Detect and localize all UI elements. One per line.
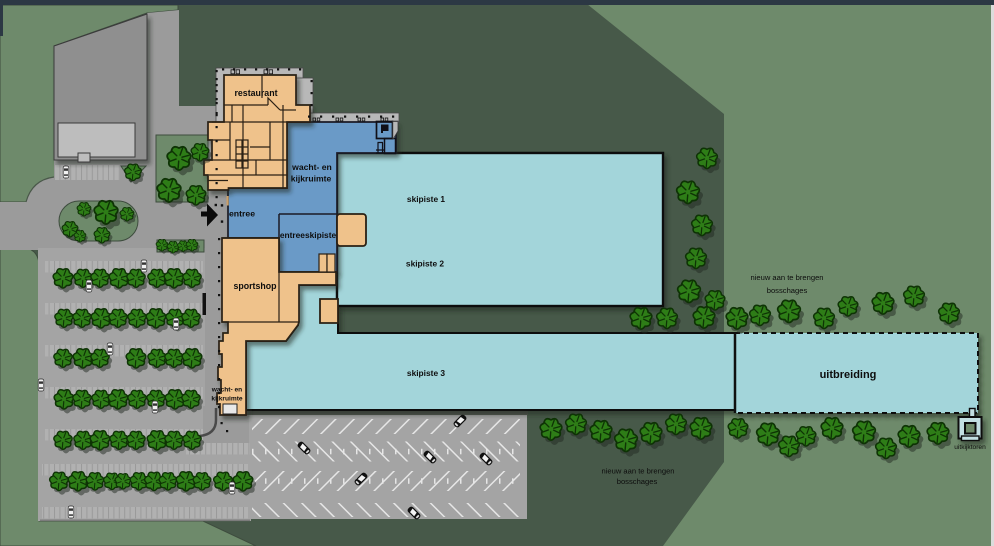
svg-text:uitbreiding: uitbreiding [820, 369, 877, 381]
svg-text:nieuw aan te brengen: nieuw aan te brengen [601, 467, 674, 476]
svg-text:sportshop: sportshop [233, 281, 277, 291]
svg-text:bosschages: bosschages [767, 286, 808, 295]
svg-text:kijkruimte: kijkruimte [211, 396, 242, 403]
svg-text:bosschages: bosschages [617, 477, 658, 486]
svg-text:skipiste 3: skipiste 3 [407, 368, 446, 378]
svg-text:kijkruimte: kijkruimte [291, 174, 332, 184]
svg-text:skipiste 2: skipiste 2 [406, 259, 445, 269]
svg-text:skipiste 1: skipiste 1 [407, 194, 446, 204]
svg-text:wacht- en: wacht- en [291, 162, 332, 172]
svg-text:restaurant: restaurant [234, 88, 277, 98]
svg-text:uitkijktoren: uitkijktoren [954, 444, 986, 451]
svg-text:entreeskipiste: entreeskipiste [280, 230, 337, 240]
svg-text:wacht- en: wacht- en [211, 387, 242, 394]
svg-text:entree: entree [229, 209, 255, 219]
svg-text:nieuw aan te brengen: nieuw aan te brengen [750, 273, 823, 282]
